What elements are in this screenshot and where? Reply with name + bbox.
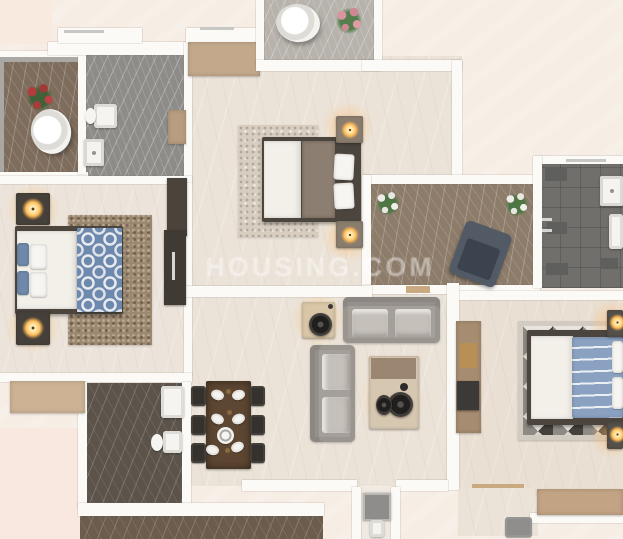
- wall-bath-bottomleft-bottom: [78, 503, 324, 516]
- bed-mid-platform: [302, 141, 335, 218]
- wall-bath-topmid-right: [374, 0, 382, 66]
- sofa-horizontal: [343, 297, 440, 343]
- wardrobe-bedroom-mid-top: [188, 42, 260, 76]
- flower-pot-bath-topmid: [331, 5, 367, 37]
- dresser-left-bedroom: [164, 230, 186, 305]
- dining-chair-right-3: [250, 443, 265, 463]
- wall-bedroom-mid-bottom: [184, 286, 372, 297]
- lamp-left-bottom: [22, 317, 44, 339]
- door-hinge-bath-topright-2: [542, 229, 552, 232]
- wardrobe-strip-dark: [167, 178, 187, 236]
- bed-mid-blanket: [264, 141, 301, 218]
- rail-balcony-left-side: [0, 57, 4, 175]
- coffee-bowl-small: [376, 395, 392, 415]
- doorframe-entry-left: [352, 487, 361, 539]
- pillow-right-2: [612, 377, 623, 409]
- wardrobe-right-bottom: [537, 489, 623, 515]
- tile-dark-1: [545, 168, 567, 181]
- wall-hall-right: [452, 60, 462, 180]
- dining-chair-left-2: [191, 415, 206, 435]
- shower-bath-topright: [600, 176, 623, 206]
- table-deco-2: [227, 410, 232, 415]
- table-deco-3: [225, 448, 230, 453]
- console-box: [460, 343, 477, 368]
- tv-console-bedroom-right: [456, 321, 481, 433]
- lamp-left-top: [22, 198, 44, 220]
- door-hinge-bath-topright-1: [542, 218, 552, 221]
- toilet-bowl-bath-topleft: [85, 108, 96, 124]
- wall-bath-topright-left: [533, 156, 542, 288]
- lamp-mid-top: [341, 121, 359, 139]
- pillow-right-1: [612, 341, 623, 373]
- coffee-deco-dot: [400, 383, 408, 391]
- tile-dark-3: [546, 263, 568, 275]
- entry-door-panel: [363, 493, 391, 521]
- window-slit-bedroom-mid: [200, 27, 234, 30]
- sofa-vertical: [310, 345, 355, 442]
- door-threshold-bedroom-right: [472, 484, 524, 488]
- housing-watermark: HOUSING.COM: [196, 250, 444, 284]
- dining-chair-right-1: [250, 386, 265, 406]
- dresser-handle: [172, 252, 175, 280]
- door-threshold-balcony-right: [406, 286, 430, 293]
- floorplan-canvas: HOUSING.COM: [0, 0, 623, 539]
- wall-entry-left: [242, 480, 357, 491]
- lamp-right-top: [609, 314, 623, 331]
- mudroom-floor: [80, 516, 323, 539]
- lamp-right-bottom: [609, 426, 623, 443]
- toilet-tank-bath-bottomleft: [163, 431, 182, 453]
- toilet-bowl-bath-bottomleft: [151, 434, 163, 451]
- pillow-blue-left-1: [17, 243, 29, 266]
- coffee-table-tray: [371, 358, 416, 379]
- wall-bedroom-right-top: [459, 291, 623, 300]
- bed-right-foot-blanket: [531, 336, 573, 419]
- wardrobe-left-bottom: [10, 381, 85, 413]
- stool-corridor: [505, 517, 532, 537]
- wardrobe-strip-tan: [168, 110, 186, 144]
- bg-patch-pink: [0, 428, 86, 539]
- side-table-deco: [328, 304, 333, 309]
- wall-hall-top: [362, 60, 462, 71]
- tv-unit-dark: [457, 381, 479, 410]
- pillow-bed-mid-2: [333, 182, 354, 209]
- serving-bowl-center: [217, 427, 234, 444]
- shower-tray-bath-topleft: [84, 139, 104, 166]
- dining-chair-right-2: [250, 415, 265, 435]
- dining-chair-left-1: [191, 386, 206, 406]
- wall-bath-topleft-top: [48, 42, 191, 55]
- table-deco-1: [226, 389, 231, 394]
- pillow-left-2: [30, 272, 47, 297]
- blanket-left-patterned: [77, 228, 122, 312]
- bg-patch-peach: [0, 0, 52, 44]
- wall-bedroom-mid-top: [186, 28, 264, 43]
- sink-bath-bottomleft: [161, 386, 184, 418]
- entry-keypad: [370, 520, 384, 537]
- lamp-mid-bottom: [341, 226, 359, 244]
- toilet-tank-bath-topleft: [94, 104, 117, 128]
- dining-chair-left-3: [191, 443, 206, 463]
- pillow-blue-left-2: [17, 271, 29, 295]
- wall-entry-right: [396, 480, 448, 491]
- pillow-bed-mid-1: [333, 153, 354, 180]
- doorframe-entry-right: [391, 487, 400, 539]
- plant-balcony-right-2: [502, 190, 532, 220]
- rail-balcony-left-top: [0, 57, 80, 62]
- tile-dark-2: [547, 222, 567, 234]
- glass-bath-topright: [566, 159, 606, 162]
- tile-dark-4: [600, 258, 618, 269]
- sink-bath-topright: [609, 214, 623, 249]
- pillow-left-1: [30, 244, 47, 269]
- window-slit-bath-topleft: [64, 30, 104, 33]
- wall-bath-topmid-left: [256, 0, 264, 66]
- wall-bedroom-left-top: [0, 176, 192, 184]
- plant-balcony-right-1: [373, 189, 403, 219]
- side-table-bowl: [309, 313, 332, 336]
- wall-balcony-right-top: [364, 175, 540, 184]
